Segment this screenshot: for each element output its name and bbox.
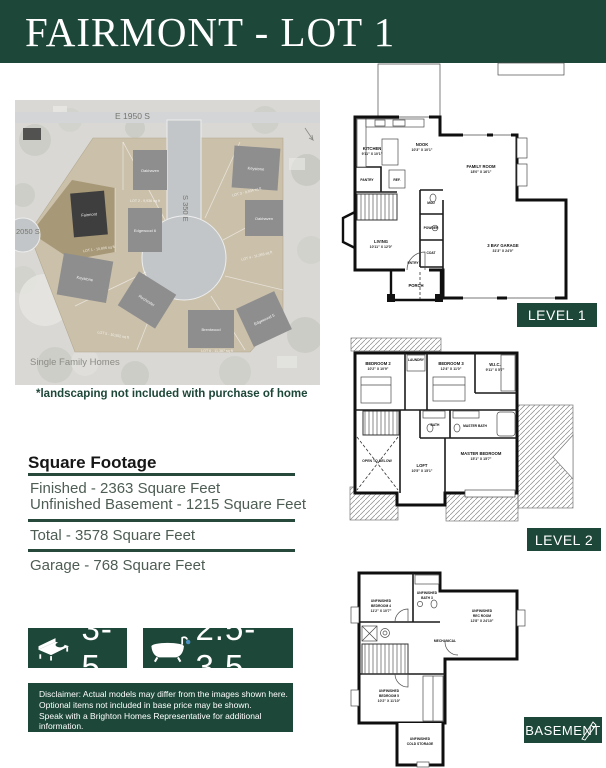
sqft-garage: Garage - 768 Square Feet [30, 557, 205, 574]
svg-text:LOT 6 - 11,387 sq ft: LOT 6 - 11,387 sq ft [201, 349, 233, 353]
divider [28, 519, 295, 522]
level2-badge-label: LEVEL 2 [535, 532, 593, 548]
level1-badge-label: LEVEL 1 [528, 307, 586, 323]
map-house-label: Oakhaven [141, 168, 159, 173]
bathtub-icon [148, 631, 192, 665]
page-title: FAIRMONT - LOT 1 [0, 0, 606, 64]
room-label-mud: MUD [427, 201, 435, 205]
site-map: Oakhaven Keystone Fairmont Edgewood 6 Oa… [15, 100, 320, 385]
room-label-living: LIVING [374, 239, 388, 244]
window-well [351, 607, 359, 623]
disclaimer-line: Disclaimer: Actual models may differ fro… [39, 689, 293, 700]
room-label-rec-a: UNFINISHED [472, 609, 493, 613]
room-dims-garage: 31'3" X 24'0" [493, 249, 514, 253]
disclaimer-line: Speak with a Brighton Homes Representati… [39, 711, 293, 733]
level1-floorplan: KITCHEN 9'11" X 10'1" NOOK 10'3" X 10'1"… [335, 62, 606, 330]
room-label-nook: NOOK [416, 142, 429, 147]
room-label-pantry: PANTRY [360, 178, 374, 182]
map-house-oakhaven-1: Oakhaven [133, 150, 167, 190]
disclaimer-line: Optional items not included in base pric… [39, 700, 293, 711]
room-label-bedroom5-a: UNFINISHED [379, 689, 400, 693]
room-dims-wic: 9'11" X 5'7" [486, 368, 505, 372]
room-dims-kitchen: 9'11" X 10'1" [362, 152, 383, 156]
map-house-keystone-1: Keystone [232, 146, 281, 191]
disclaimer-line: Areas and dimensions are approximate. [39, 732, 293, 743]
level1-badge: LEVEL 1 [517, 303, 597, 327]
flyer-page: FAIRMONT - LOT 1 [0, 0, 606, 768]
room-dims-family: 18'0" X 16'1" [471, 170, 492, 174]
bed-icon [34, 633, 73, 663]
deck-outline [378, 64, 440, 117]
room-label-ref: REF. [393, 178, 400, 182]
map-house-brentwood: Brentwood [188, 310, 234, 348]
room-dims-rec: 12'8" X 24'10" [471, 619, 494, 623]
room-label-family: FAMILY ROOM [466, 164, 496, 169]
deck-outline [498, 63, 564, 75]
sqft-total: Total - 3578 Square Feet [30, 527, 195, 544]
room-label-powder: POWDER [424, 226, 439, 230]
beds-badge: 3-5 [28, 628, 127, 668]
room-label-bath3-a: UNFINISHED [417, 591, 438, 595]
window-well [351, 690, 359, 706]
window-bay [465, 490, 515, 497]
room-label-cold-b: COLD STORAGE [407, 742, 434, 746]
room-label-open-to-below: OPEN TO BELOW [362, 459, 392, 463]
room-label-wic: W.I.C. [489, 362, 500, 367]
room-label-bedroom4-b: BEDROOM 4 [371, 604, 391, 608]
divider [28, 473, 295, 476]
map-house-edgewood6: Edgewood 6 [128, 208, 162, 252]
baths-count: 2.5-3.5 [195, 610, 293, 686]
room-dims-master-bedroom: 15'1" X 15'7" [471, 457, 492, 461]
room-dims-living: 10'11" X 12'0" [370, 245, 393, 249]
map-house-label: Edgewood 6 [134, 228, 157, 233]
svg-text:LOT 2 - 9,936 sq ft: LOT 2 - 9,936 sq ft [130, 199, 160, 203]
room-label-bath3-b: BATH 3 [421, 596, 433, 600]
street-label-left: 2050 S [16, 227, 40, 236]
room-dims-nook: 10'3" X 10'1" [412, 148, 433, 152]
room-label-bedroom2: BEDROOM 2 [365, 361, 391, 366]
disclaimer-box: Disclaimer: Actual models may differ fro… [28, 683, 293, 732]
room-label-mechanical: MECHANICAL [434, 639, 456, 643]
cold-storage-vent [417, 762, 429, 767]
street-label-vertical: S 350 E [181, 195, 190, 222]
room-label-kitchen: KITCHEN [363, 146, 382, 151]
stairs [357, 194, 397, 220]
room-label-coat: COAT [426, 251, 435, 255]
room-label-porch: PORCH [408, 283, 423, 288]
header-banner: FAIRMONT - LOT 1 [0, 0, 606, 63]
stairs [362, 644, 408, 674]
room-label-loft: LOFT [417, 463, 428, 468]
window-seat [517, 138, 527, 158]
basement-badge: BASEMENT [524, 717, 602, 743]
garage-doors [463, 296, 555, 300]
room-dims-bedroom4: 11'2" X 10'7" [371, 609, 392, 613]
map-house-keystone-2: Keystone [57, 253, 114, 303]
square-footage-heading: Square Footage [28, 453, 156, 473]
map-caption: Single Family Homes [30, 357, 120, 368]
room-dims-bedroom3: 12'4" X 11'0" [441, 367, 462, 371]
room-label-bath: BATH [431, 423, 441, 427]
fireplace [517, 164, 527, 186]
map-house-oakhaven-2: Oakhaven [245, 200, 283, 236]
level2-floorplan: BEDROOM 2 10'2" X 10'9" LAUNDRY BEDROOM … [335, 335, 606, 560]
level2-badge: LEVEL 2 [527, 528, 601, 551]
room-label-bedroom5-b: BEDROOM 5 [379, 694, 399, 698]
room-dims-bedroom5: 10'2" X 11'10" [378, 699, 401, 703]
pencil-icon [579, 719, 599, 741]
room-label-bedroom3: BEDROOM 3 [438, 361, 464, 366]
room-label-laundry: LAUNDRY [408, 358, 425, 362]
stairs [363, 411, 399, 435]
room-label-rec-b: REC ROOM [473, 614, 491, 618]
room-label-cold-a: UNFINISHED [410, 737, 431, 741]
sqft-finished: Finished - 2363 Square Feet [30, 480, 220, 497]
room-label-bedroom4-a: UNFINISHED [371, 599, 392, 603]
landscaping-note: *landscaping not included with purchase … [36, 388, 308, 400]
room-label-master-bath: MASTER BATH [463, 424, 487, 428]
map-house-label: Oakhaven [255, 216, 273, 221]
map-house-label: Brentwood [201, 327, 220, 332]
window-well [517, 610, 525, 626]
divider [28, 549, 295, 552]
bay-window [343, 212, 355, 248]
room-label-entry: ENTRY [407, 261, 419, 265]
room-label-garage: 3 BAY GARAGE [487, 243, 519, 248]
street-label-top: E 1950 S [115, 111, 150, 121]
baths-badge: 2.5-3.5 [143, 628, 293, 668]
map-house-fairmont: Fairmont [70, 191, 108, 238]
sqft-unfinished-basement: Unfinished Basement - 1215 Square Feet [30, 496, 306, 513]
room-dims-loft: 10'5" X 15'1" [412, 469, 433, 473]
room-label-master-bedroom: MASTER BEDROOM [461, 451, 502, 456]
beds-count: 3-5 [81, 610, 127, 686]
room-dims-bedroom2: 10'2" X 10'9" [368, 367, 389, 371]
